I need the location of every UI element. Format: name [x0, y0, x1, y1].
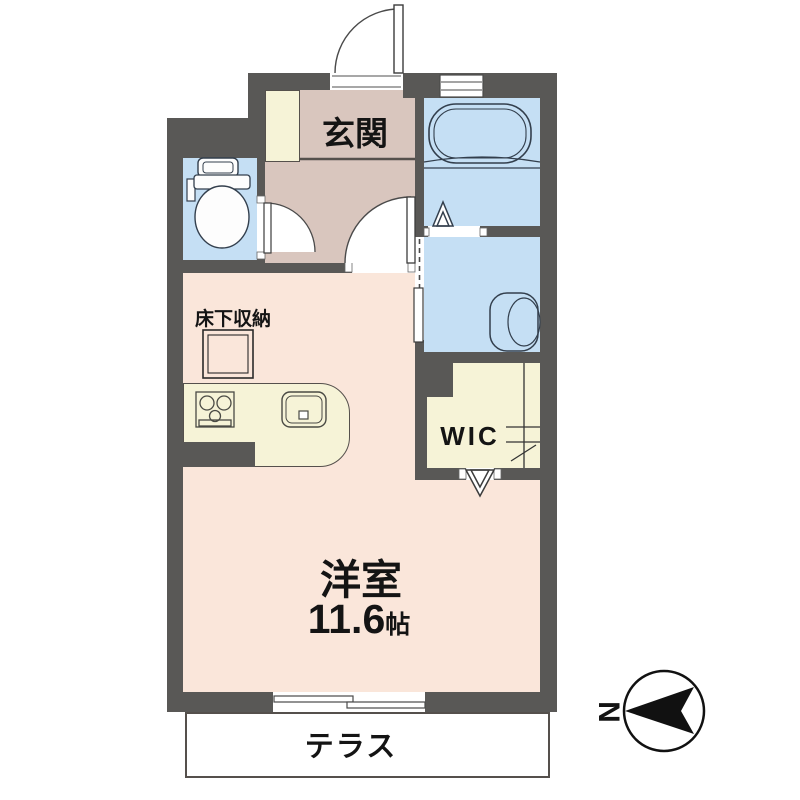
- main-room-area-unit: 帖: [385, 605, 410, 641]
- washbasin: [490, 293, 540, 351]
- toilet-door: [257, 196, 315, 259]
- terrace-label: テラス: [305, 723, 397, 765]
- sink-drain: [299, 411, 308, 419]
- bathtub: [424, 104, 540, 168]
- pocket-door-panel: [414, 288, 423, 342]
- compass: [624, 671, 704, 751]
- fixtures-overlay: [0, 0, 800, 800]
- wic-label: WIC: [440, 421, 500, 452]
- toilet-tank: [198, 158, 238, 177]
- entrance-door: [330, 5, 403, 90]
- main-room-area: 11.6帖: [308, 596, 411, 643]
- underfloor-storage-label: 床下収納: [195, 304, 271, 331]
- bathroom-window: [440, 75, 483, 97]
- toilet-bowl: [195, 186, 249, 248]
- terrace-sliding-door: [273, 692, 425, 712]
- compass-north-label: N: [591, 701, 625, 723]
- toilet-door-leaf: [264, 203, 271, 253]
- kitchen-sink: [282, 392, 326, 427]
- genkan-label: 玄関: [322, 107, 388, 155]
- door-jamb: [257, 196, 265, 203]
- bathroom-folding-door: [424, 202, 487, 236]
- room-door-leaf: [407, 197, 415, 263]
- wic-folding-door: [459, 469, 501, 496]
- closet-hanger-symbol: [506, 363, 540, 468]
- entrance-door-leaf: [394, 5, 403, 73]
- underfloor-storage-hatch: [203, 330, 253, 378]
- gas-stove: [196, 392, 234, 427]
- floor-plan: 玄関 床下収納 WIC 洋室 11.6帖 テラス N: [0, 0, 800, 800]
- genkan-room-door: [345, 197, 415, 272]
- toilet: [187, 158, 250, 248]
- main-room-area-value: 11.6: [308, 596, 386, 643]
